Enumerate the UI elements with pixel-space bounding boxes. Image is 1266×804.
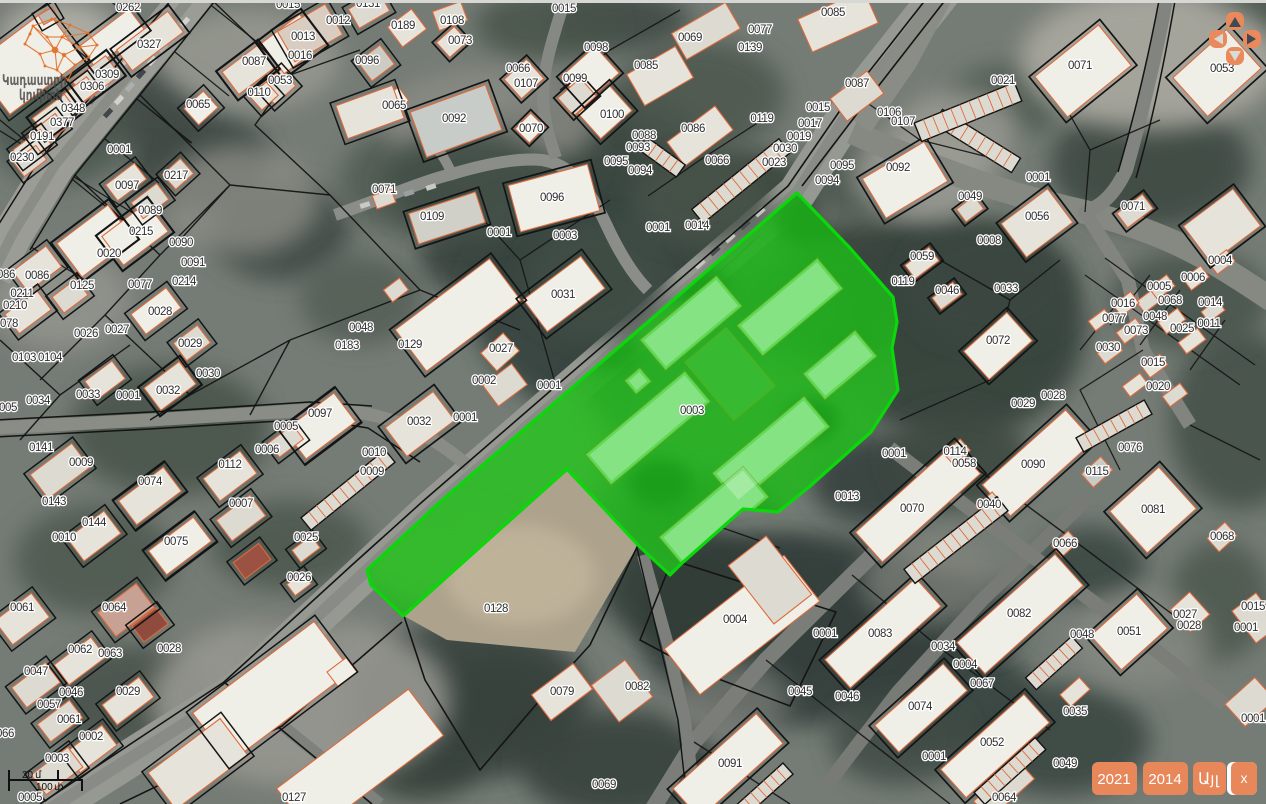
svg-text:0094: 0094: [815, 175, 840, 187]
svg-text:0020: 0020: [1146, 381, 1170, 393]
svg-text:0077: 0077: [1102, 313, 1126, 325]
svg-text:0028: 0028: [1041, 390, 1065, 402]
svg-text:0075: 0075: [164, 536, 188, 548]
svg-text:0046: 0046: [835, 691, 859, 703]
svg-text:0034: 0034: [931, 641, 956, 653]
svg-text:0090: 0090: [169, 237, 193, 249]
svg-text:0066: 0066: [1053, 538, 1077, 550]
svg-text:0001: 0001: [116, 390, 140, 402]
svg-text:0031: 0031: [551, 289, 575, 301]
svg-text:0064: 0064: [992, 792, 1017, 804]
svg-text:0090: 0090: [1021, 459, 1045, 471]
svg-text:0068: 0068: [1210, 531, 1234, 543]
svg-text:0049: 0049: [958, 191, 982, 203]
svg-text:0003: 0003: [680, 405, 704, 417]
svg-text:0215: 0215: [129, 226, 153, 238]
svg-text:0093: 0093: [626, 142, 650, 154]
svg-text:0030: 0030: [196, 368, 220, 380]
svg-text:0070: 0070: [900, 503, 924, 515]
svg-text:0119: 0119: [891, 276, 914, 288]
svg-text:0082: 0082: [625, 681, 649, 693]
svg-text:0070: 0070: [519, 123, 543, 135]
svg-text:0003: 0003: [553, 230, 577, 242]
svg-text:0009: 0009: [360, 466, 384, 478]
svg-text:0015: 0015: [1141, 357, 1165, 369]
svg-text:0114: 0114: [943, 446, 967, 458]
svg-text:0019: 0019: [787, 131, 811, 143]
svg-text:0005: 0005: [0, 402, 17, 414]
svg-text:0006: 0006: [255, 444, 279, 456]
svg-text:0067: 0067: [970, 678, 994, 690]
svg-text:0306: 0306: [80, 81, 104, 93]
svg-text:0033: 0033: [76, 389, 100, 401]
svg-text:0013: 0013: [835, 491, 859, 503]
svg-text:0086: 0086: [0, 269, 15, 281]
svg-text:0066: 0066: [705, 155, 729, 167]
svg-text:0011: 0011: [1197, 318, 1220, 330]
svg-text:0183: 0183: [335, 340, 359, 352]
svg-text:0098: 0098: [584, 42, 608, 54]
svg-text:0028: 0028: [148, 306, 172, 318]
svg-text:0016: 0016: [288, 50, 312, 62]
svg-text:0020: 0020: [97, 248, 121, 260]
svg-text:0104: 0104: [38, 352, 63, 364]
svg-text:0087: 0087: [242, 56, 266, 68]
svg-text:0023: 0023: [762, 157, 786, 169]
svg-text:0001: 0001: [1026, 172, 1050, 184]
svg-text:2014: 2014: [1148, 771, 1181, 788]
svg-text:0001: 0001: [453, 412, 477, 424]
svg-text:0125: 0125: [70, 280, 94, 292]
svg-text:0108: 0108: [440, 15, 464, 27]
svg-text:0088: 0088: [632, 130, 656, 142]
svg-text:0015: 0015: [552, 3, 576, 15]
svg-text:0034: 0034: [26, 395, 51, 407]
svg-text:0016: 0016: [1111, 298, 1135, 310]
svg-text:0115: 0115: [1085, 466, 1108, 478]
svg-text:0069: 0069: [592, 779, 616, 791]
svg-text:0030: 0030: [1096, 342, 1120, 354]
svg-text:0032: 0032: [407, 416, 431, 428]
svg-text:0013: 0013: [291, 31, 315, 43]
svg-text:0139: 0139: [738, 42, 762, 54]
svg-text:0048: 0048: [349, 322, 373, 334]
svg-text:0049: 0049: [1053, 758, 1077, 770]
svg-text:0001: 0001: [537, 380, 561, 392]
svg-text:0189: 0189: [391, 20, 415, 32]
svg-text:0014: 0014: [1198, 297, 1223, 309]
svg-text:0071: 0071: [1068, 60, 1092, 72]
svg-text:0029: 0029: [1011, 398, 1035, 410]
svg-text:0005: 0005: [1147, 281, 1171, 293]
svg-text:0017: 0017: [798, 118, 822, 130]
svg-text:0001: 0001: [813, 628, 837, 640]
svg-text:0046: 0046: [935, 285, 959, 297]
svg-text:0099: 0099: [563, 73, 587, 85]
svg-text:0004: 0004: [1208, 255, 1233, 267]
svg-text:0061: 0061: [10, 602, 34, 614]
svg-text:0025: 0025: [1170, 323, 1194, 335]
svg-text:0094: 0094: [628, 165, 653, 177]
svg-text:0065: 0065: [382, 100, 406, 112]
svg-text:0001: 0001: [922, 751, 946, 763]
svg-text:0001: 0001: [487, 227, 511, 239]
svg-text:0046: 0046: [59, 687, 83, 699]
svg-text:0053: 0053: [268, 75, 292, 87]
svg-text:0029: 0029: [178, 338, 202, 350]
svg-text:0009: 0009: [69, 457, 93, 469]
svg-text:0143: 0143: [42, 496, 66, 508]
svg-text:0001: 0001: [107, 144, 131, 156]
svg-text:0010: 0010: [362, 447, 386, 459]
svg-text:0086: 0086: [25, 270, 49, 282]
svg-text:0012: 0012: [326, 15, 350, 27]
svg-text:0065: 0065: [186, 99, 210, 111]
svg-text:0015: 0015: [806, 102, 830, 114]
svg-text:0083: 0083: [868, 628, 892, 640]
svg-text:0092: 0092: [442, 113, 466, 125]
svg-text:0015: 0015: [1241, 601, 1265, 613]
svg-text:0035: 0035: [1063, 706, 1087, 718]
svg-text:0327: 0327: [137, 39, 161, 51]
svg-text:0092: 0092: [886, 162, 910, 174]
svg-text:2021: 2021: [1097, 771, 1130, 788]
svg-text:0004: 0004: [723, 614, 748, 626]
svg-text:0103: 0103: [12, 352, 36, 364]
svg-text:0048: 0048: [1143, 311, 1167, 323]
svg-text:0309: 0309: [95, 69, 119, 81]
svg-text:0074: 0074: [908, 701, 933, 713]
svg-text:0210: 0210: [3, 300, 27, 312]
svg-text:0141: 0141: [29, 442, 53, 454]
svg-text:0059: 0059: [910, 251, 934, 263]
svg-text:0021: 0021: [991, 75, 1015, 87]
svg-text:0085: 0085: [634, 60, 658, 72]
svg-text:0211: 0211: [10, 288, 33, 300]
svg-text:0097: 0097: [115, 180, 139, 192]
svg-text:0109: 0109: [420, 211, 444, 223]
svg-text:0091: 0091: [718, 758, 742, 770]
svg-text:0028: 0028: [157, 643, 181, 655]
svg-text:x: x: [1241, 770, 1248, 786]
svg-text:0029: 0029: [116, 686, 140, 698]
svg-text:0086: 0086: [681, 123, 705, 135]
svg-text:0100: 0100: [600, 109, 624, 121]
svg-text:0096: 0096: [355, 55, 379, 67]
svg-text:0077: 0077: [748, 24, 772, 36]
svg-text:0078: 0078: [0, 318, 18, 330]
svg-text:0087: 0087: [845, 78, 869, 90]
svg-text:0377: 0377: [50, 117, 74, 129]
svg-text:0002: 0002: [472, 375, 496, 387]
svg-text:0191: 0191: [30, 131, 54, 143]
svg-text:0053: 0053: [1210, 63, 1234, 75]
svg-text:0074: 0074: [138, 476, 163, 488]
svg-text:0073: 0073: [1124, 325, 1148, 337]
svg-text:0071: 0071: [1121, 201, 1145, 213]
svg-text:0057: 0057: [37, 699, 61, 711]
svg-text:0032: 0032: [156, 385, 180, 397]
svg-text:0071: 0071: [372, 184, 396, 196]
svg-text:0110: 0110: [247, 87, 270, 99]
svg-text:0072: 0072: [986, 335, 1010, 347]
svg-text:0003: 0003: [45, 753, 69, 765]
svg-text:0025: 0025: [294, 532, 318, 544]
svg-text:0082: 0082: [1007, 608, 1031, 620]
svg-text:0033: 0033: [994, 283, 1018, 295]
svg-text:0045: 0045: [788, 686, 812, 698]
svg-text:0069: 0069: [678, 32, 702, 44]
svg-text:0129: 0129: [398, 339, 422, 351]
svg-text:0002: 0002: [79, 731, 103, 743]
svg-text:0076: 0076: [1118, 442, 1142, 454]
svg-text:0001: 0001: [646, 222, 670, 234]
svg-text:100: 100: [36, 782, 53, 793]
svg-text:0063: 0063: [98, 648, 122, 660]
svg-text:0066: 0066: [506, 63, 530, 75]
svg-text:0095: 0095: [604, 156, 628, 168]
svg-text:0014: 0014: [685, 220, 710, 232]
svg-text:0056: 0056: [1025, 211, 1049, 223]
svg-text:0001: 0001: [882, 448, 906, 460]
svg-text:0348: 0348: [61, 103, 85, 115]
svg-text:0001: 0001: [1234, 622, 1258, 634]
svg-text:0144: 0144: [82, 517, 107, 529]
svg-text:0030: 0030: [773, 143, 797, 155]
svg-text:0217: 0217: [164, 170, 188, 182]
svg-text:0001: 0001: [1241, 713, 1265, 725]
svg-text:0026: 0026: [74, 328, 98, 340]
svg-text:0112: 0112: [218, 459, 241, 471]
svg-text:0058: 0058: [952, 458, 976, 470]
svg-text:0091: 0091: [181, 257, 205, 269]
svg-text:0214: 0214: [172, 276, 197, 288]
svg-text:0064: 0064: [102, 602, 127, 614]
svg-text:0028: 0028: [1177, 620, 1201, 632]
svg-text:0061: 0061: [57, 714, 81, 726]
svg-text:0027: 0027: [105, 324, 129, 336]
svg-text:0119: 0119: [750, 113, 773, 125]
svg-text:0026: 0026: [287, 572, 311, 584]
svg-text:0107: 0107: [891, 116, 915, 128]
svg-text:0128: 0128: [484, 603, 508, 615]
svg-text:0073: 0073: [448, 35, 472, 47]
svg-text:0008: 0008: [977, 235, 1001, 247]
svg-text:0096: 0096: [540, 192, 564, 204]
svg-text:0048: 0048: [1070, 629, 1094, 641]
svg-text:0005: 0005: [274, 421, 298, 433]
svg-text:0006: 0006: [1181, 272, 1205, 284]
svg-text:0004: 0004: [953, 659, 978, 671]
svg-text:0007: 0007: [229, 498, 253, 510]
svg-text:0047: 0047: [24, 666, 48, 678]
svg-text:0230: 0230: [10, 152, 34, 164]
svg-text:0089: 0089: [138, 205, 162, 217]
svg-text:0079: 0079: [550, 686, 574, 698]
svg-text:0040: 0040: [977, 499, 1001, 511]
svg-text:0095: 0095: [830, 160, 854, 172]
svg-text:0077: 0077: [128, 279, 152, 291]
svg-text:0107: 0107: [514, 78, 538, 90]
svg-text:0027: 0027: [489, 343, 513, 355]
svg-text:20: 20: [22, 770, 34, 781]
svg-text:0081: 0081: [1141, 504, 1165, 516]
svg-text:0010: 0010: [52, 532, 76, 544]
svg-text:0062: 0062: [68, 644, 92, 656]
svg-text:0097: 0097: [308, 408, 332, 420]
svg-text:0262: 0262: [116, 2, 140, 14]
svg-text:0051: 0051: [1117, 626, 1141, 638]
svg-text:0068: 0068: [1158, 295, 1182, 307]
svg-text:0085: 0085: [821, 7, 845, 19]
svg-text:0005: 0005: [18, 792, 42, 804]
svg-text:0127: 0127: [282, 792, 306, 804]
svg-text:0052: 0052: [980, 737, 1004, 749]
svg-text:0066: 0066: [0, 728, 14, 740]
